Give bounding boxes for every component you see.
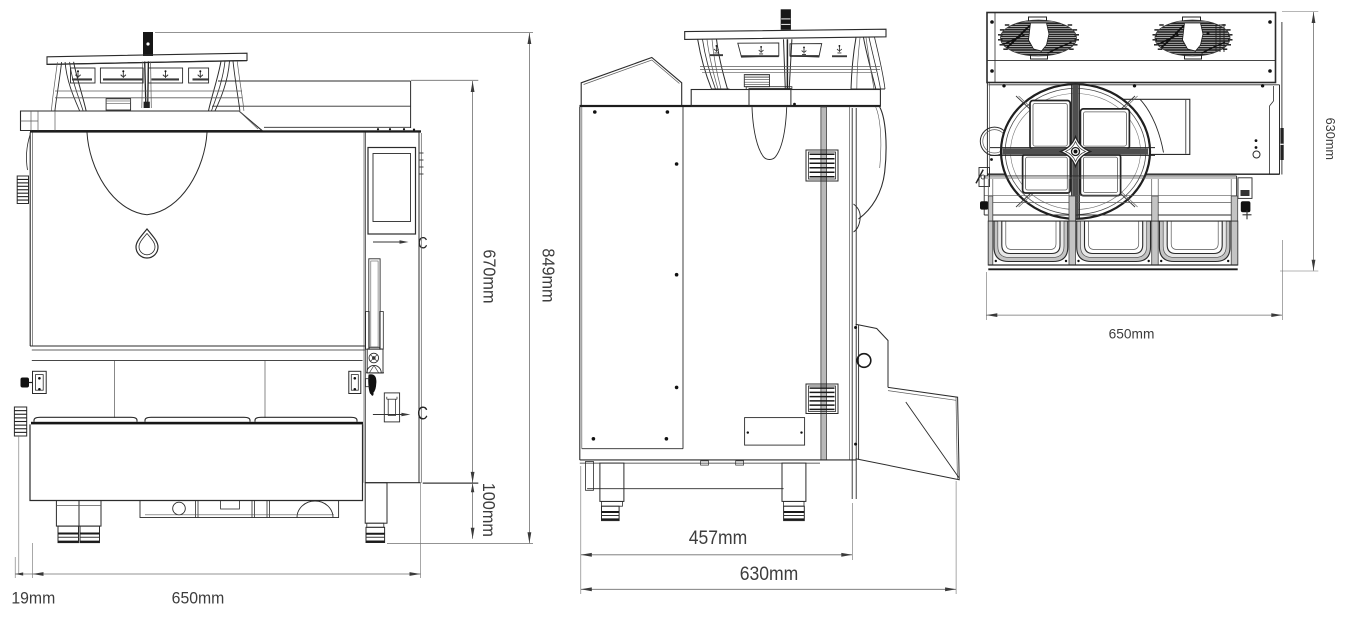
- svg-text:630mm: 630mm: [1323, 118, 1338, 160]
- svg-text:630mm: 630mm: [740, 562, 799, 584]
- svg-text:650mm: 650mm: [1109, 325, 1155, 341]
- svg-text:650mm: 650mm: [172, 589, 225, 607]
- svg-text:100mm: 100mm: [479, 483, 499, 537]
- svg-text:849mm: 849mm: [539, 248, 559, 302]
- svg-text:19mm: 19mm: [11, 589, 55, 607]
- svg-text:457mm: 457mm: [689, 526, 748, 548]
- svg-text:C: C: [417, 403, 428, 424]
- svg-text:670mm: 670mm: [479, 249, 499, 303]
